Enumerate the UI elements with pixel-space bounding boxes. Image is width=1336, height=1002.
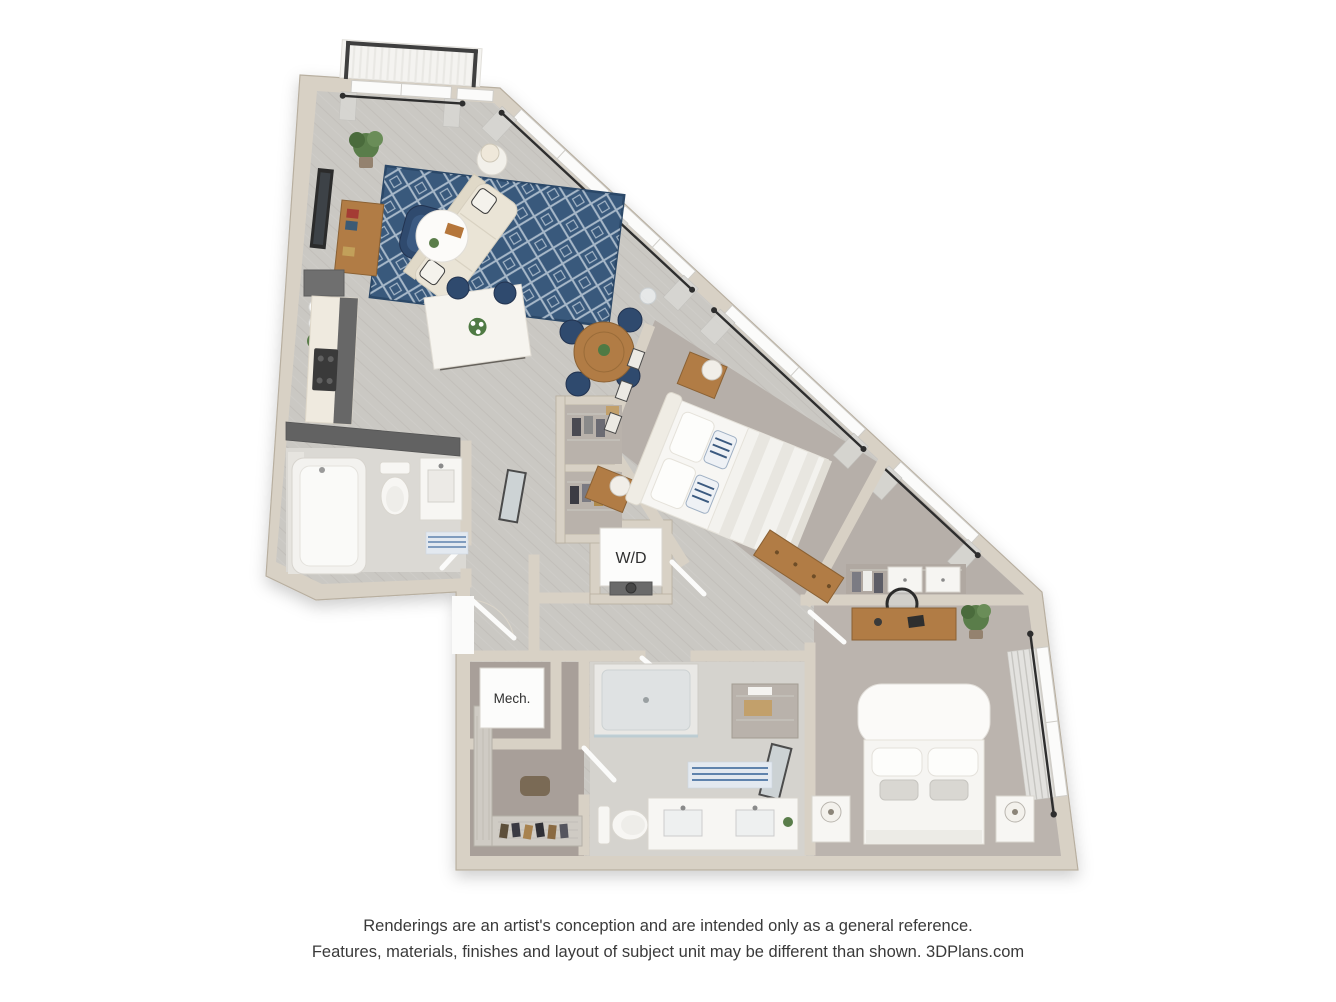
floor-plan-page: W/D (0, 0, 1336, 1002)
side-table-lamp (477, 144, 507, 175)
mech-label: Mech. (494, 691, 531, 706)
laptop (907, 615, 924, 628)
mech-closet: Mech. (480, 668, 544, 728)
laundry-closet: W/D (600, 528, 662, 595)
washer-dryer-label: W/D (615, 550, 646, 567)
living-room-window-top (457, 88, 494, 101)
bar-stool (447, 277, 469, 299)
disclaimer-line-2: Features, materials, finishes and layout… (312, 943, 1024, 961)
bar-stool (494, 282, 516, 304)
disclaimer-line-1: Renderings are an artist's conception an… (363, 917, 972, 935)
shower (594, 664, 698, 736)
bath-rug-2 (688, 762, 772, 788)
floor-plan-rendering: W/D (0, 0, 1336, 1002)
pendant-light (640, 288, 656, 304)
vanity-1 (420, 458, 462, 520)
entry-opening (452, 596, 474, 654)
coffee-table (416, 210, 468, 262)
hall-closet-walls (556, 396, 622, 405)
bed-2 (858, 684, 990, 844)
desk (852, 608, 956, 640)
upper-cabinet (304, 270, 344, 296)
bath-rug-1 (426, 532, 468, 554)
basket (744, 700, 772, 716)
linen-closet (732, 684, 798, 738)
media-console (334, 200, 383, 276)
duffel-bag (520, 776, 550, 796)
double-vanity (648, 798, 798, 850)
table-lamp (702, 360, 722, 380)
towels (748, 687, 772, 695)
cooktop (312, 348, 338, 391)
headboard (858, 684, 990, 746)
toilet-1 (380, 462, 410, 515)
kitchen-counter (305, 296, 358, 424)
